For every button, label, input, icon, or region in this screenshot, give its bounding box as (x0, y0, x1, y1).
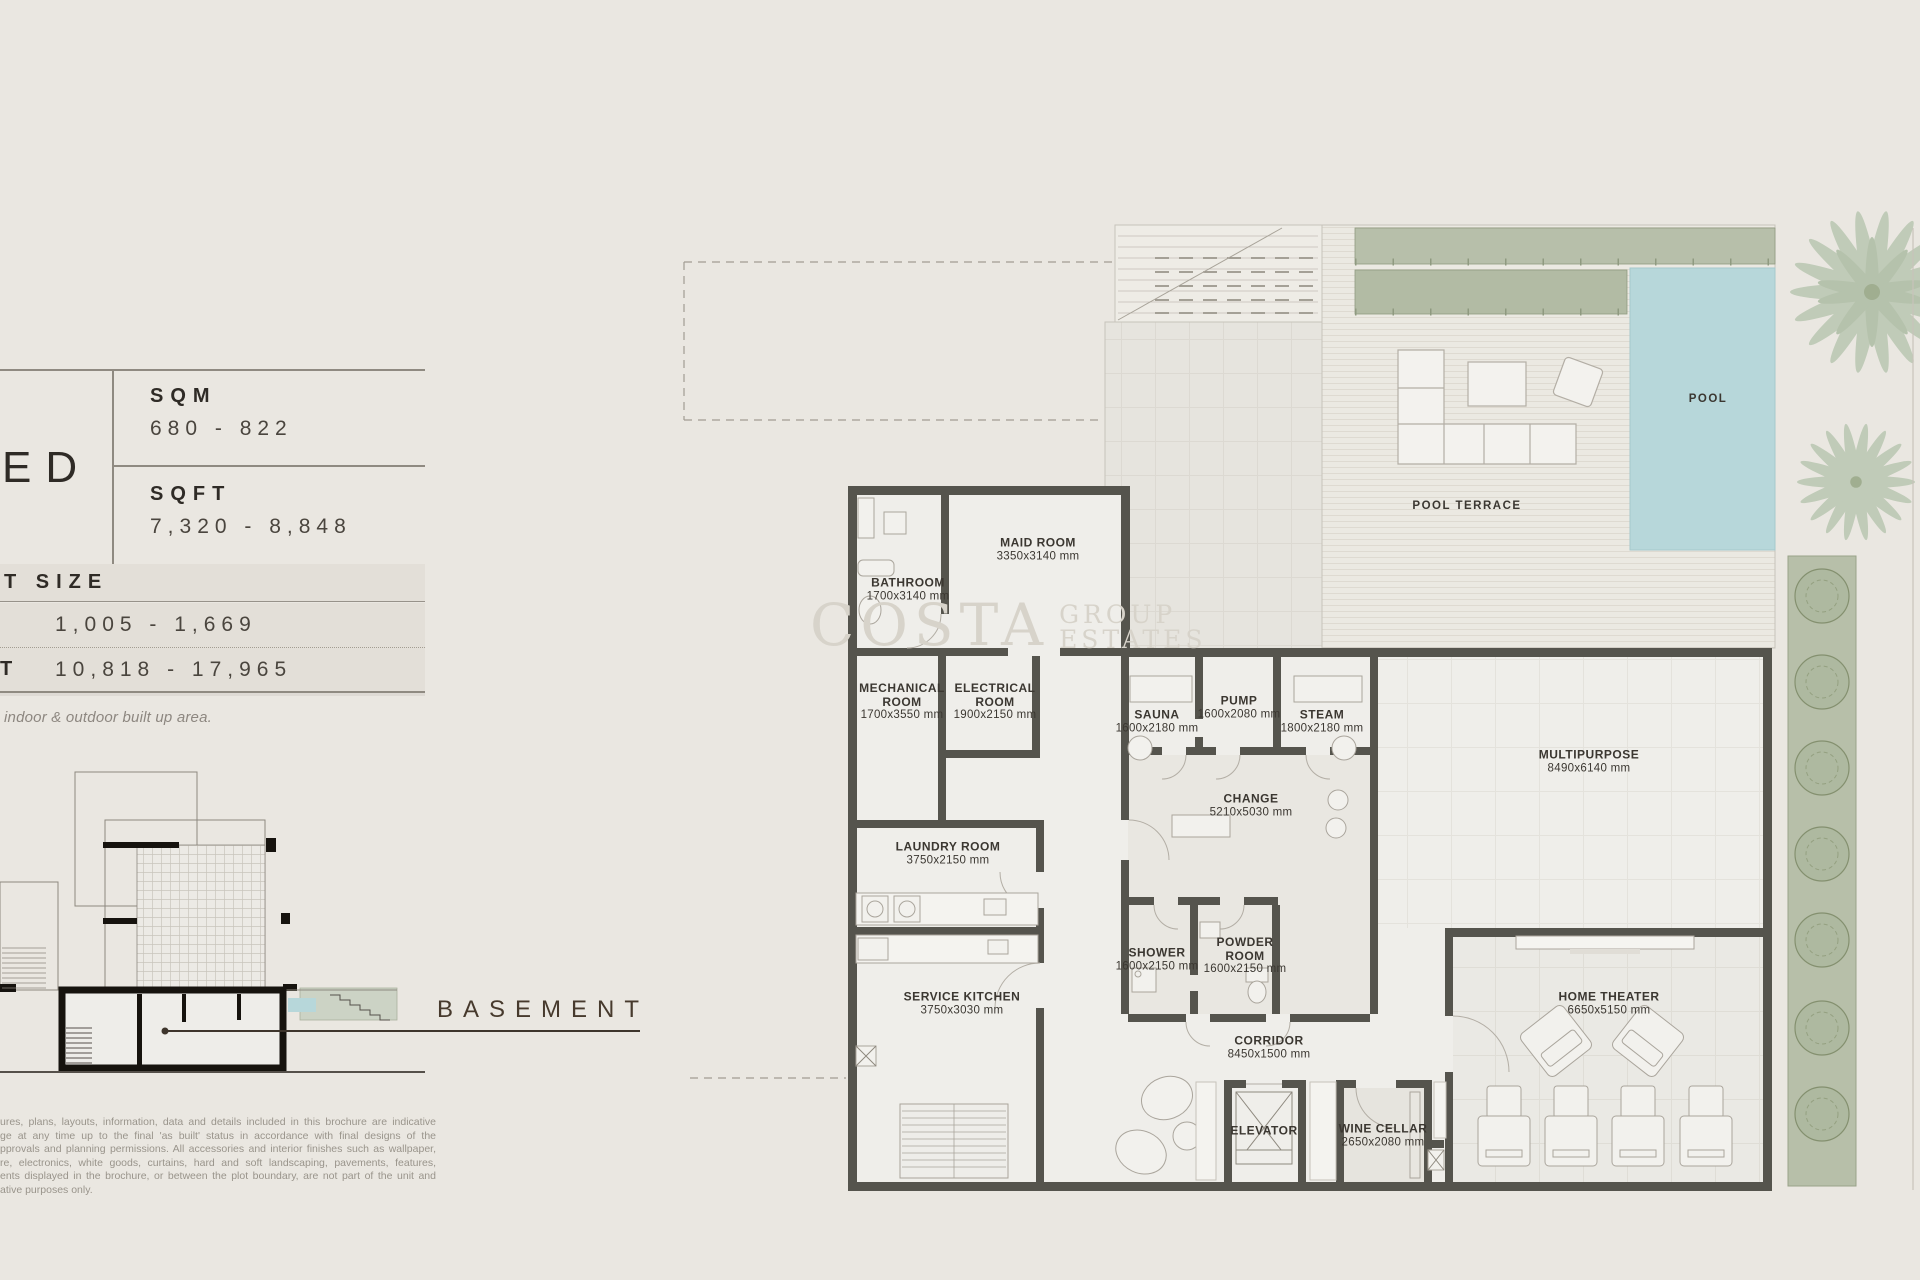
room-label-wine-cellar: WINE CELLAR 2650x2080 mm (1339, 1123, 1428, 1150)
room-label-bathroom: BATHROOM 1700x3140 mm (867, 577, 950, 604)
room-dims: 1700x3550 mm (854, 709, 950, 723)
ramp-hatch (1115, 225, 1322, 322)
brochure-page: COSTA GROUP ESTATES ED SQM 680 - 822 SQF… (0, 0, 1920, 1280)
plot-sqft-row: T 10,818 - 17,965 (0, 648, 425, 692)
room-label-steam: STEAM 1800x2180 mm (1281, 709, 1364, 736)
room-name: POWDER ROOM (1214, 936, 1276, 963)
plot-size-header: T SIZE (0, 564, 425, 602)
room-name: BATHROOM (867, 577, 950, 591)
plot-sqft-label: T (0, 658, 14, 681)
unit-info-table: ED SQM 680 - 822 SQFT 7,320 - 8,848 (0, 369, 425, 566)
room-name: HOME THEATER (1558, 991, 1659, 1005)
room-name: LAUNDRY ROOM (896, 841, 1001, 855)
sqm-value: 680 - 822 (150, 417, 425, 441)
landscape-right (1788, 210, 1920, 1190)
room-name: CORRIDOR (1228, 1035, 1311, 1049)
coffee-table (1468, 362, 1526, 406)
plot-size-table: 1,005 - 1,669 T 10,818 - 17,965 (0, 603, 425, 693)
disclaimer: ures, plans, layouts, information, data … (0, 1116, 436, 1198)
room-dims: 3750x3030 mm (904, 1004, 1021, 1018)
area-rows: SQM 680 - 822 SQFT 7,320 - 8,848 (112, 371, 425, 564)
plot-sqm-row: 1,005 - 1,669 (0, 603, 425, 648)
room-label-powder-room: POWDER ROOM 1600x2150 mm (1204, 936, 1287, 977)
disclaimer-line: ge at any time up to the final 'as built… (0, 1130, 436, 1144)
sqft-row: SQFT 7,320 - 8,848 (112, 469, 425, 565)
room-dims: 1700x3140 mm (867, 590, 950, 604)
pool-water (1630, 268, 1775, 550)
palm-tree-top (1790, 210, 1920, 375)
area-note: indoor & outdoor built up area. (4, 709, 212, 726)
palm-tree-mid (1797, 423, 1915, 542)
room-dims: 1600x2180 mm (1116, 722, 1199, 736)
room-name: MECHANICAL ROOM (854, 682, 950, 709)
pool-terrace-label: POOL TERRACE (1412, 500, 1521, 512)
room-dims: 5210x5030 mm (1210, 806, 1293, 820)
section-title: BASEMENT (437, 996, 649, 1024)
room-dims: 1600x2150 mm (1116, 960, 1199, 974)
bedrooms-label: ED (0, 371, 114, 564)
room-name: SAUNA (1116, 709, 1199, 723)
sqm-row: SQM 680 - 822 (112, 371, 425, 467)
disclaimer-line: ures, plans, layouts, information, data … (0, 1116, 436, 1130)
room-name: MAID ROOM (997, 537, 1080, 551)
room-name: ELEVATOR (1230, 1124, 1297, 1138)
room-label-shower: SHOWER 1600x2150 mm (1116, 947, 1199, 974)
plot-sqft-value: 10,818 - 17,965 (55, 658, 292, 682)
room-dims: 3750x2150 mm (896, 854, 1001, 868)
room-name: SERVICE KITCHEN (904, 991, 1021, 1005)
room-label-electrical-room: ELECTRICAL ROOM 1900x2150 mm (947, 682, 1043, 723)
room-name: MULTIPURPOSE (1539, 749, 1639, 763)
disclaimer-line: ents displayed in the brochure, or betwe… (0, 1170, 436, 1184)
room-dims: 8450x1500 mm (1228, 1048, 1311, 1062)
room-name: SHOWER (1116, 947, 1199, 961)
room-label-laundry-room: LAUNDRY ROOM 3750x2150 mm (896, 841, 1001, 868)
room-label-mechanical-room: MECHANICAL ROOM 1700x3550 mm (854, 682, 950, 723)
disclaimer-line: ative purposes only. (0, 1184, 436, 1198)
sqft-label: SQFT (150, 483, 425, 506)
room-dims: 8490x6140 mm (1539, 762, 1639, 776)
room-dims: 6650x5150 mm (1558, 1004, 1659, 1018)
room-label-pump: PUMP 1600x2080 mm (1198, 695, 1281, 722)
room-dims: 1800x2180 mm (1281, 722, 1364, 736)
room-name: ELECTRICAL ROOM (947, 682, 1043, 709)
room-dims: 1600x2150 mm (1204, 963, 1287, 977)
room-name: WINE CELLAR (1339, 1123, 1428, 1137)
room-label-multipurpose: MULTIPURPOSE 8490x6140 mm (1539, 749, 1639, 776)
room-dims: 1900x2150 mm (947, 709, 1043, 723)
sqm-label: SQM (150, 385, 425, 408)
section-drawing (0, 772, 640, 1072)
room-label-home-theater: HOME THEATER 6650x5150 mm (1558, 991, 1659, 1018)
room-label-change: CHANGE 5210x5030 mm (1210, 793, 1293, 820)
room-dims: 1600x2080 mm (1198, 708, 1281, 722)
room-label-maid-room: MAID ROOM 3350x3140 mm (997, 537, 1080, 564)
plot-size-title: T SIZE (4, 571, 108, 594)
room-name: PUMP (1198, 695, 1281, 709)
sqft-value: 7,320 - 8,848 (150, 515, 425, 539)
room-dims: 2650x2080 mm (1339, 1136, 1428, 1150)
plot-sqm-value: 1,005 - 1,669 (55, 613, 257, 637)
room-label-elevator: ELEVATOR (1230, 1124, 1297, 1138)
disclaimer-line: re, electronics, white goods, curtains, … (0, 1157, 436, 1171)
room-label-sauna: SAUNA 1600x2180 mm (1116, 709, 1199, 736)
room-dims: 3350x3140 mm (997, 550, 1080, 564)
pool-label: POOL (1689, 393, 1728, 405)
room-label-corridor: CORRIDOR 8450x1500 mm (1228, 1035, 1311, 1062)
room-label-service-kitchen: SERVICE KITCHEN 3750x3030 mm (904, 991, 1021, 1018)
room-name: STEAM (1281, 709, 1364, 723)
disclaimer-line: pprovals and planning permissions. All a… (0, 1143, 436, 1157)
room-name: CHANGE (1210, 793, 1293, 807)
